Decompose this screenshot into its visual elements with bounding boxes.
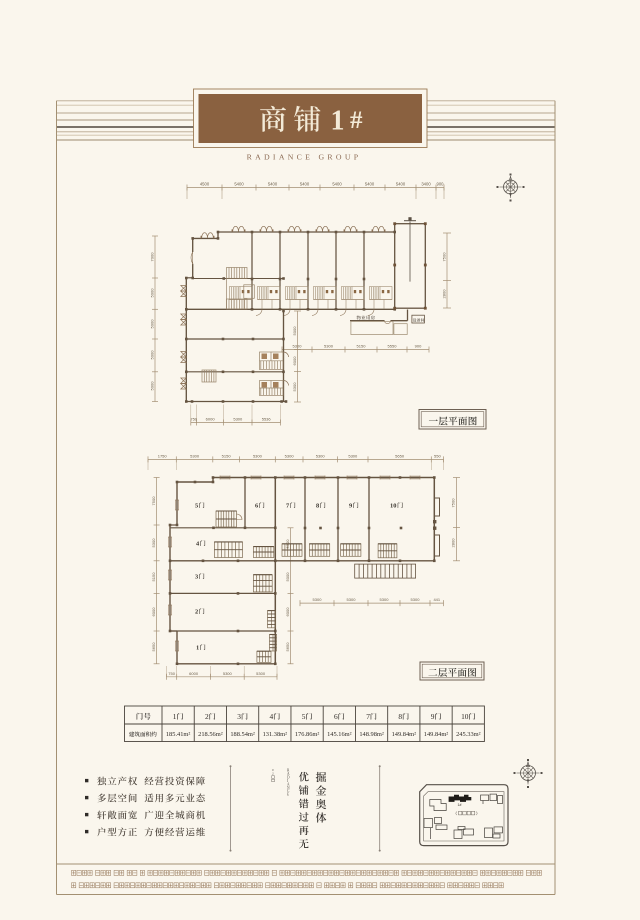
svg-text:176.86m²: 176.86m² [295, 731, 320, 738]
svg-text:2: 2 [195, 609, 198, 616]
svg-text:5300: 5300 [253, 453, 263, 458]
svg-text:9: 9 [349, 503, 352, 510]
svg-text:2800: 2800 [442, 289, 447, 299]
svg-text:RADIANCE GROUP: RADIANCE GROUP [247, 153, 362, 162]
svg-text:5400: 5400 [332, 182, 342, 187]
svg-text:2: 2 [272, 771, 274, 775]
svg-text:7500: 7500 [151, 496, 156, 506]
svg-text:#: # [350, 107, 363, 134]
svg-text:1: 1 [196, 645, 199, 652]
svg-text:5: 5 [302, 712, 306, 721]
svg-text:5300: 5300 [233, 417, 243, 422]
svg-text:185.41m²: 185.41m² [166, 731, 191, 738]
svg-text:3: 3 [237, 712, 241, 721]
svg-text:5400: 5400 [365, 182, 375, 187]
svg-text:149.84m²: 149.84m² [392, 731, 417, 738]
svg-text:900: 900 [437, 182, 445, 187]
svg-text:4: 4 [270, 712, 274, 721]
svg-text:5400: 5400 [234, 182, 244, 187]
svg-text:5150: 5150 [222, 453, 232, 458]
svg-text:5000: 5000 [150, 288, 155, 298]
svg-text:5300: 5300 [348, 453, 358, 458]
svg-text:9: 9 [431, 712, 435, 721]
svg-text:6000: 6000 [151, 607, 156, 617]
svg-text:5300: 5300 [313, 597, 323, 602]
svg-text:148.98m²: 148.98m² [359, 731, 384, 738]
svg-text:5300: 5300 [285, 453, 295, 458]
svg-text:5300: 5300 [256, 671, 266, 676]
svg-text:5150: 5150 [357, 344, 367, 349]
svg-text:6000: 6000 [189, 671, 199, 676]
svg-text:5300: 5300 [347, 597, 357, 602]
svg-text:10: 10 [390, 503, 396, 510]
svg-text:5300: 5300 [316, 453, 326, 458]
svg-text:6000: 6000 [292, 356, 297, 366]
svg-text:245.33m²: 245.33m² [456, 731, 481, 738]
svg-text:5150: 5150 [151, 572, 156, 582]
svg-text:3400: 3400 [421, 182, 431, 187]
svg-text:4500: 4500 [200, 182, 210, 187]
svg-text:131.38m²: 131.38m² [263, 731, 288, 738]
svg-text:7500: 7500 [442, 252, 447, 262]
svg-text:8: 8 [398, 712, 402, 721]
svg-text:6000: 6000 [206, 417, 216, 422]
svg-text:750: 750 [168, 671, 175, 676]
svg-text:7: 7 [366, 712, 370, 721]
svg-text:5000: 5000 [150, 350, 155, 360]
svg-text:5550: 5550 [388, 344, 398, 349]
svg-text:10: 10 [461, 712, 469, 721]
svg-text:5000: 5000 [150, 381, 155, 391]
svg-text:7500: 7500 [451, 498, 456, 508]
svg-text:550: 550 [434, 453, 441, 458]
svg-text:5400: 5400 [268, 182, 278, 187]
svg-text:5: 5 [195, 503, 198, 510]
svg-text:7000: 7000 [150, 252, 155, 262]
svg-text:5300: 5300 [223, 671, 233, 676]
svg-text:5300: 5300 [292, 382, 297, 392]
svg-text:5300: 5300 [324, 344, 334, 349]
svg-text:5650: 5650 [395, 453, 405, 458]
svg-text:1#: 1# [458, 803, 462, 807]
svg-text:2800: 2800 [451, 538, 456, 548]
svg-text:5400: 5400 [300, 182, 310, 187]
svg-text:145.16m²: 145.16m² [327, 731, 352, 738]
svg-text:3: 3 [195, 574, 198, 581]
svg-text:5650: 5650 [151, 642, 156, 652]
svg-text:6000: 6000 [285, 607, 290, 617]
svg-text:149.84m²: 149.84m² [424, 731, 449, 738]
svg-text:1: 1 [331, 106, 345, 137]
svg-text:5300: 5300 [411, 597, 421, 602]
svg-text:5650: 5650 [285, 642, 290, 652]
svg-text:5300: 5300 [190, 453, 200, 458]
svg-text:5000: 5000 [292, 326, 297, 336]
svg-text:5000: 5000 [285, 572, 290, 582]
svg-text:5400: 5400 [396, 182, 406, 187]
svg-text:1750: 1750 [158, 453, 168, 458]
svg-text:218.56m²: 218.56m² [198, 731, 223, 738]
svg-text:1: 1 [173, 712, 177, 721]
svg-text:2: 2 [205, 712, 209, 721]
svg-text:5536: 5536 [262, 417, 272, 422]
svg-text:188.54m²: 188.54m² [230, 731, 255, 738]
svg-text:8: 8 [316, 503, 319, 510]
svg-text:6: 6 [334, 712, 338, 721]
svg-text:5300: 5300 [380, 597, 390, 602]
svg-text:441: 441 [433, 597, 440, 602]
svg-text:5000: 5000 [150, 319, 155, 329]
svg-text:900: 900 [415, 344, 422, 349]
svg-text:5300: 5300 [151, 538, 156, 548]
svg-text:750: 750 [190, 417, 197, 422]
